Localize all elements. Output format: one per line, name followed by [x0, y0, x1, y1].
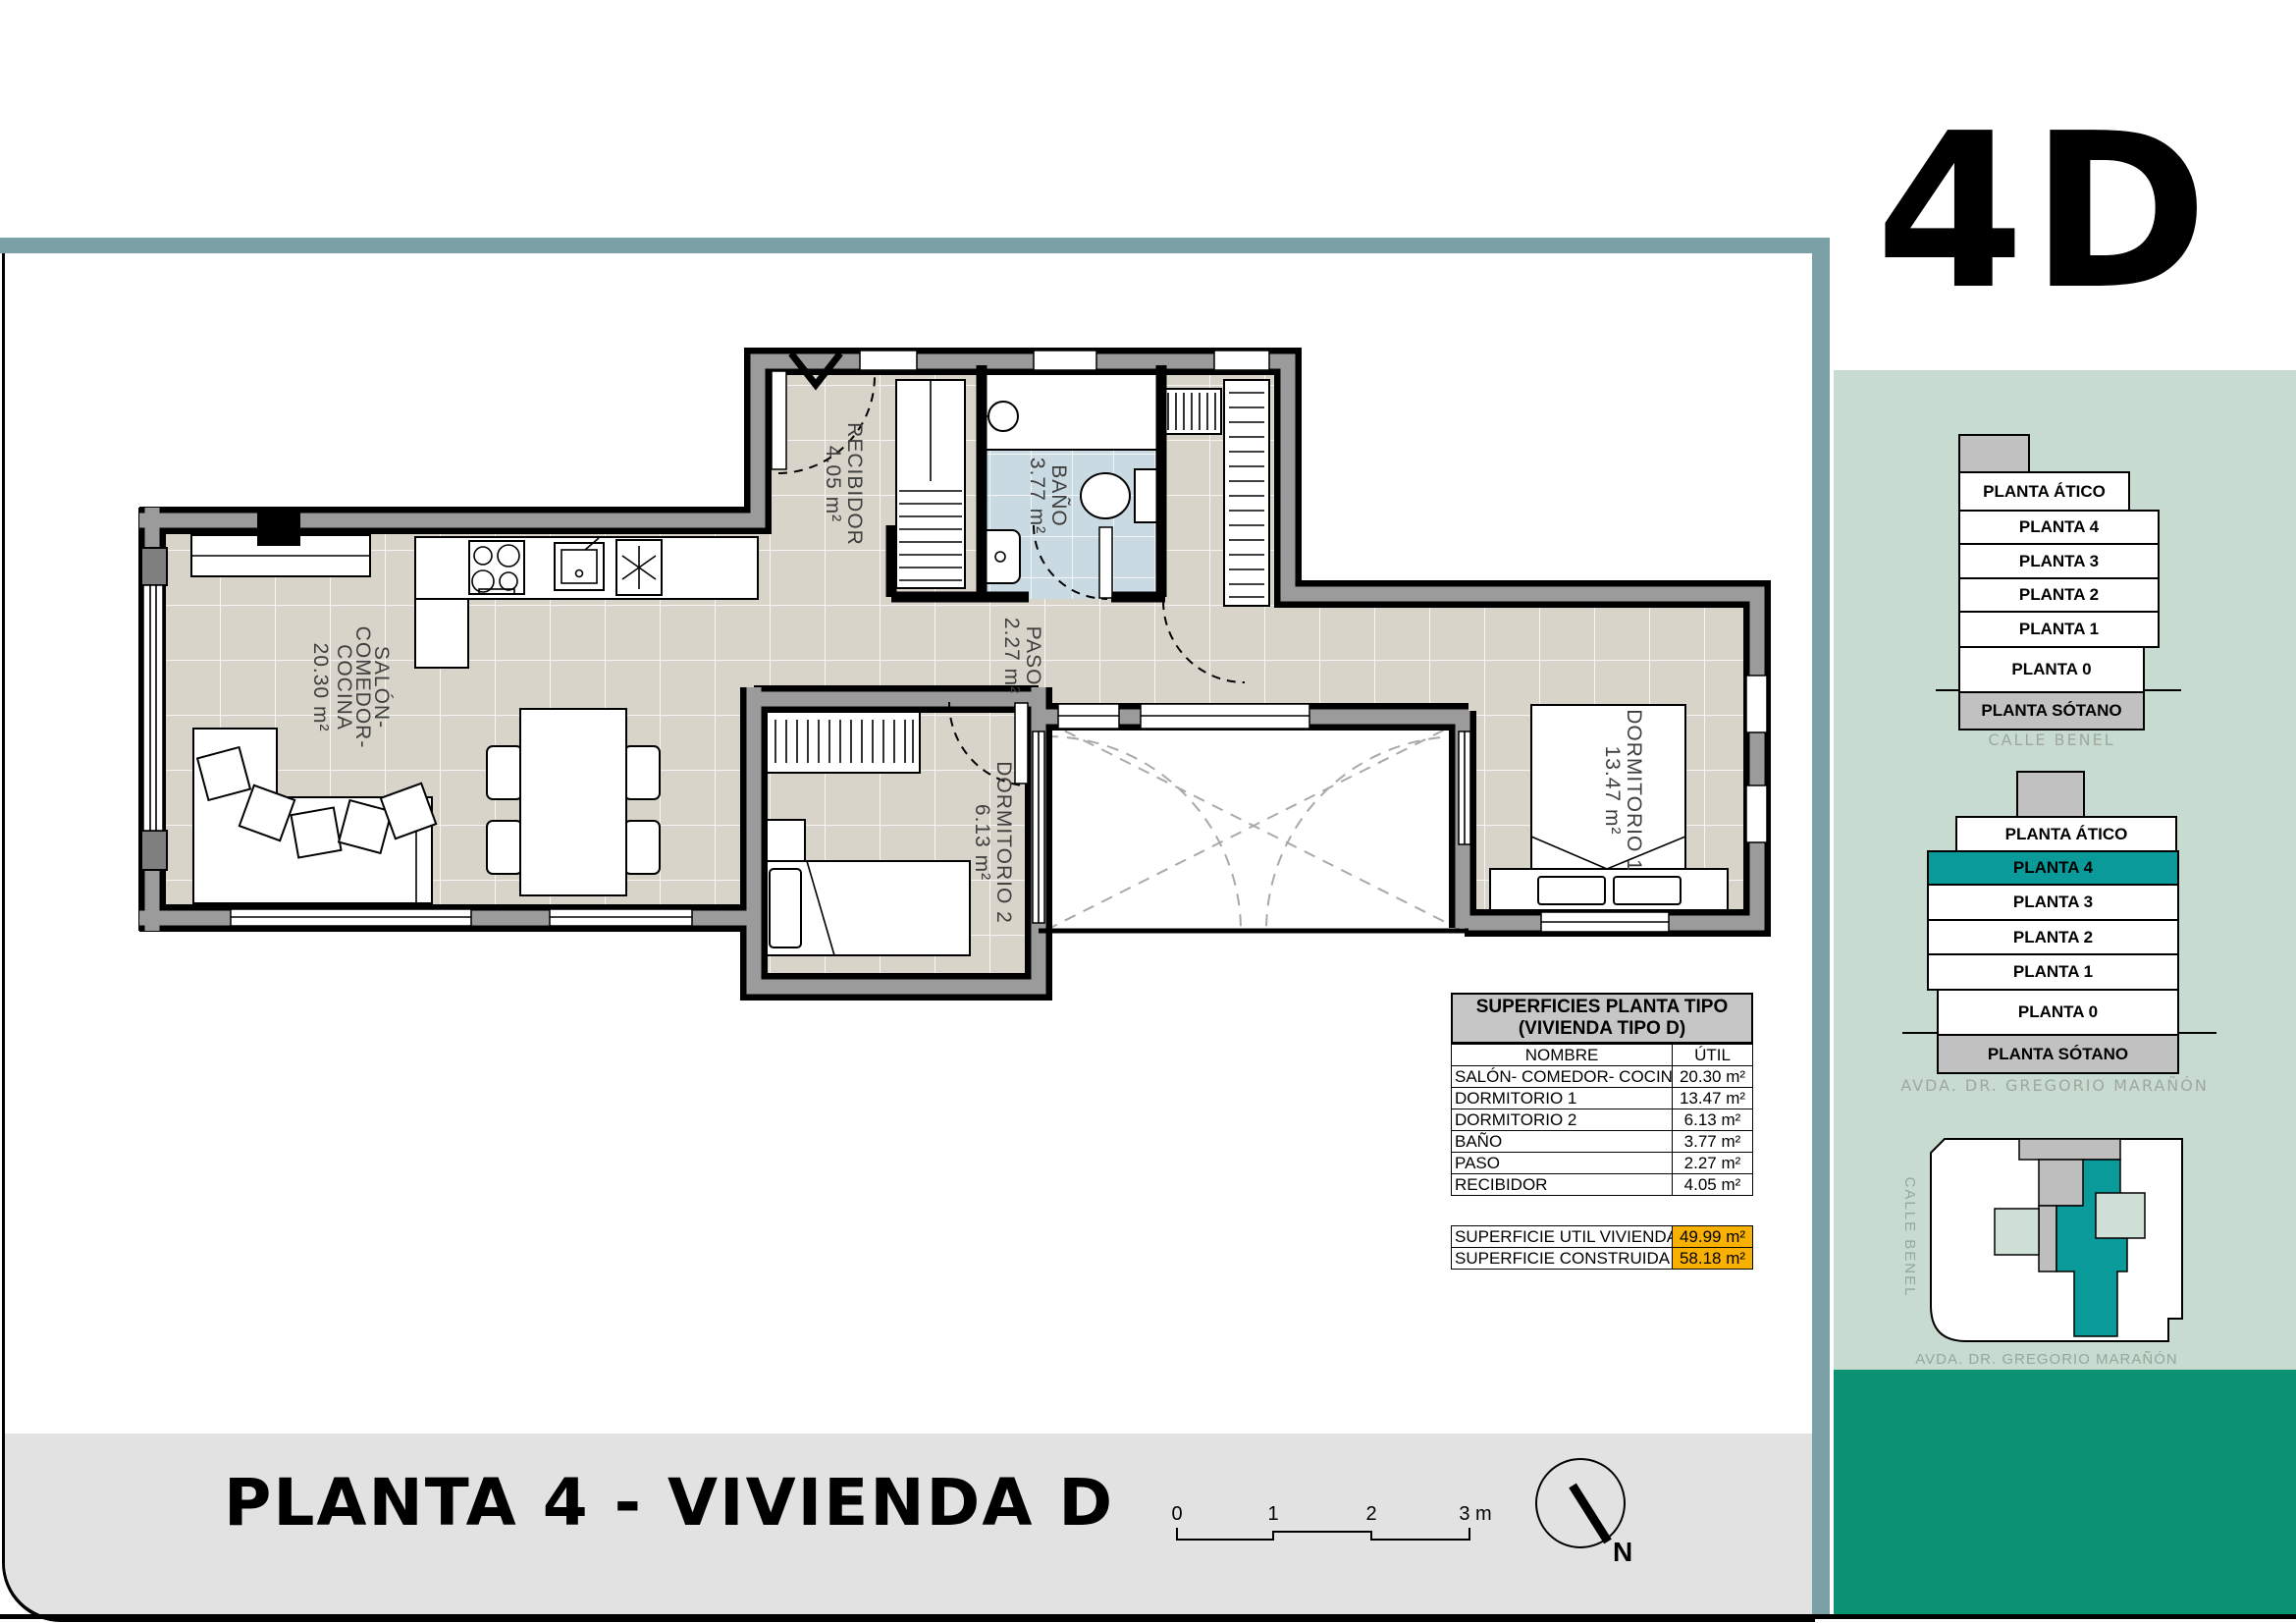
hall-closet — [896, 380, 965, 588]
table-row: SUPERFICIE CONSTRUIDA58.18 m² — [1452, 1248, 1753, 1270]
svg-text:2: 2 — [1365, 1503, 1376, 1525]
svg-text:PASO: PASO — [1022, 626, 1044, 686]
svg-text:RECIBIDOR: RECIBIDOR — [843, 422, 866, 546]
summary-areas: SUPERFICIE UTIL VIVIENDA49.99 m² SUPERFI… — [1451, 1225, 1753, 1270]
table-row: SUPERFICIE UTIL VIVIENDA49.99 m² — [1452, 1226, 1753, 1248]
page-title: PLANTA 4 - VIVIENDA D — [224, 1465, 1114, 1541]
floor-plan: SALÓN- COMEDOR- COCINA 20.30 m² RECIBIDO… — [0, 0, 2296, 1623]
room-areas: NOMBREÚTIL SALÓN- COMEDOR- COCINA20.30 m… — [1451, 1044, 1753, 1196]
svg-text:6.13 m²: 6.13 m² — [971, 804, 993, 881]
north-arrow-icon: N — [1526, 1451, 1654, 1574]
svg-text:N: N — [1613, 1537, 1632, 1567]
svg-text:DORMITORIO 1: DORMITORIO 1 — [1623, 709, 1645, 872]
table-row: RECIBIDOR4.05 m² — [1452, 1174, 1753, 1196]
svg-text:BAÑO: BAÑO — [1047, 464, 1071, 527]
svg-text:COCINA: COCINA — [333, 644, 355, 730]
page: 4D PLANTA ÁTICO PLANTA 4 PLANTA 3 PLANTA… — [0, 0, 2296, 1623]
svg-text:2.27 m²: 2.27 m² — [1000, 618, 1023, 694]
svg-text:1: 1 — [1267, 1503, 1278, 1525]
table-row: SALÓN- COMEDOR- COCINA20.30 m² — [1452, 1066, 1753, 1088]
ac-unit — [616, 540, 662, 595]
table-row: DORMITORIO 113.47 m² — [1452, 1088, 1753, 1109]
svg-text:20.30 m²: 20.30 m² — [309, 643, 332, 732]
column — [257, 507, 300, 546]
svg-text:3 m: 3 m — [1459, 1503, 1491, 1525]
bottom-rule — [0, 1614, 2296, 1619]
entrance-door-leaf — [772, 371, 786, 469]
washbasin — [988, 402, 1018, 431]
svg-text:3.77 m²: 3.77 m² — [1026, 458, 1048, 534]
table-title: SUPERFICIES PLANTA TIPO (VIVIENDA TIPO D… — [1451, 993, 1753, 1044]
table-row: DORMITORIO 26.13 m² — [1452, 1109, 1753, 1131]
svg-text:DORMITORIO 2: DORMITORIO 2 — [992, 761, 1015, 924]
toilet — [1081, 473, 1130, 518]
table-row: PASO2.27 m² — [1452, 1153, 1753, 1174]
label-paso: PASO 2.27 m² — [1000, 618, 1044, 694]
svg-text:0: 0 — [1171, 1503, 1182, 1525]
svg-text:4.05 m²: 4.05 m² — [822, 446, 844, 522]
table-header: NOMBREÚTIL — [1452, 1045, 1753, 1066]
areas-table: SUPERFICIES PLANTA TIPO (VIVIENDA TIPO D… — [1451, 993, 1753, 1270]
label-bano: BAÑO 3.77 m² — [1026, 458, 1071, 534]
scale-bar: 0 1 2 3 m — [1163, 1500, 1497, 1551]
svg-text:13.47 m²: 13.47 m² — [1601, 746, 1624, 836]
table-row: BAÑO3.77 m² — [1452, 1131, 1753, 1153]
